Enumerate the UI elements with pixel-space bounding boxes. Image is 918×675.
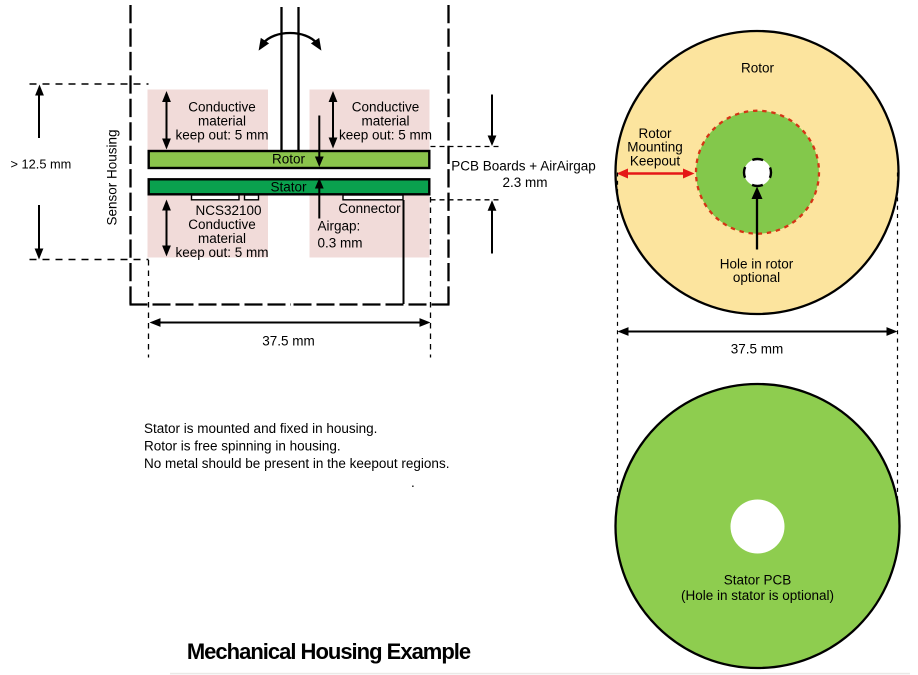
svg-text:Rotor is free spinning in hous: Rotor is free spinning in housing. xyxy=(144,438,341,453)
svg-text:keep out: 5 mm: keep out: 5 mm xyxy=(175,245,268,260)
svg-text:37.5 mm: 37.5 mm xyxy=(731,342,784,357)
svg-text:0.3 mm: 0.3 mm xyxy=(318,236,363,251)
svg-text:Stator: Stator xyxy=(270,180,307,195)
svg-text:NCS32100: NCS32100 xyxy=(195,203,261,218)
svg-text:optional: optional xyxy=(733,270,780,285)
svg-text:Airgap:: Airgap: xyxy=(318,219,361,234)
svg-text:Conductive: Conductive xyxy=(188,217,256,232)
svg-text:Sensor Housing: Sensor Housing xyxy=(105,129,120,225)
svg-text:Conductive: Conductive xyxy=(188,99,256,114)
svg-text:> 12.5 mm: > 12.5 mm xyxy=(11,157,72,172)
svg-text:2.3 mm: 2.3 mm xyxy=(502,175,547,190)
svg-text:keep out: 5 mm: keep out: 5 mm xyxy=(175,128,268,143)
svg-text:Connector: Connector xyxy=(338,201,401,216)
svg-text:Mechanical Housing Example: Mechanical Housing Example xyxy=(187,639,471,664)
svg-text:37.5 mm: 37.5 mm xyxy=(262,334,315,349)
svg-text:Keepout: Keepout xyxy=(630,154,681,169)
svg-text:Conductive: Conductive xyxy=(352,99,420,114)
svg-text:Stator PCB: Stator PCB xyxy=(724,573,792,588)
svg-text:Mounting: Mounting xyxy=(627,140,683,155)
svg-text:material: material xyxy=(361,114,409,129)
svg-text:.: . xyxy=(411,475,415,490)
svg-text:Rotor: Rotor xyxy=(741,61,775,76)
svg-text:Rotor: Rotor xyxy=(272,152,306,167)
svg-text:No metal should be present in: No metal should be present in the keepou… xyxy=(144,456,449,471)
svg-text:keep out: 5 mm: keep out: 5 mm xyxy=(339,128,432,143)
svg-text:material: material xyxy=(198,231,246,246)
svg-text:Stator is mounted and fixed in: Stator is mounted and fixed in housing. xyxy=(144,421,377,436)
svg-text:(Hole in stator is optional): (Hole in stator is optional) xyxy=(681,588,834,603)
svg-text:PCB Boards + AirAirgap: PCB Boards + AirAirgap xyxy=(451,158,595,173)
svg-text:material: material xyxy=(198,114,246,129)
